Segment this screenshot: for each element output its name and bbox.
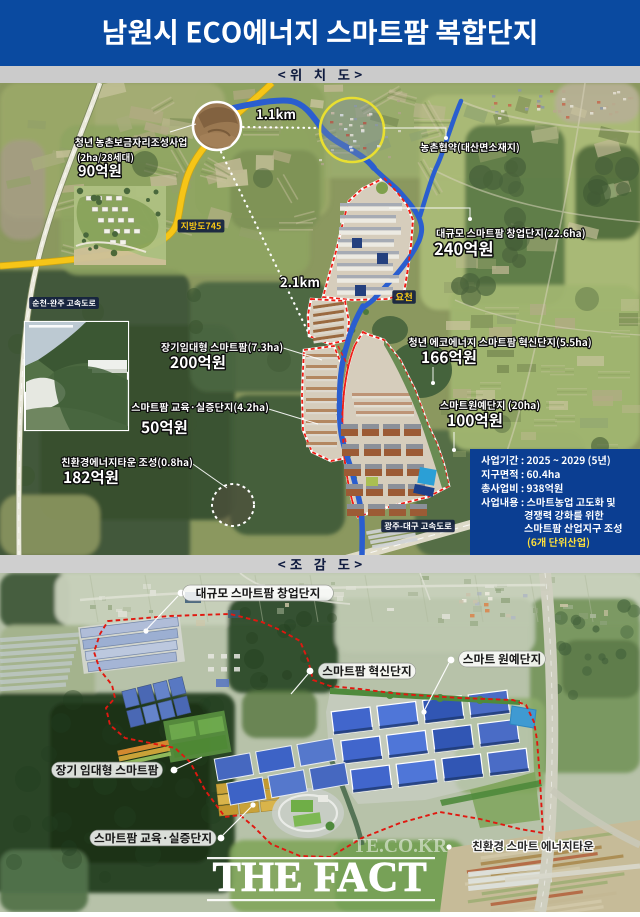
svg-text:THE FACT: THE FACT xyxy=(213,855,427,901)
svg-text:TE.CO.KR: TE.CO.KR xyxy=(353,836,448,857)
